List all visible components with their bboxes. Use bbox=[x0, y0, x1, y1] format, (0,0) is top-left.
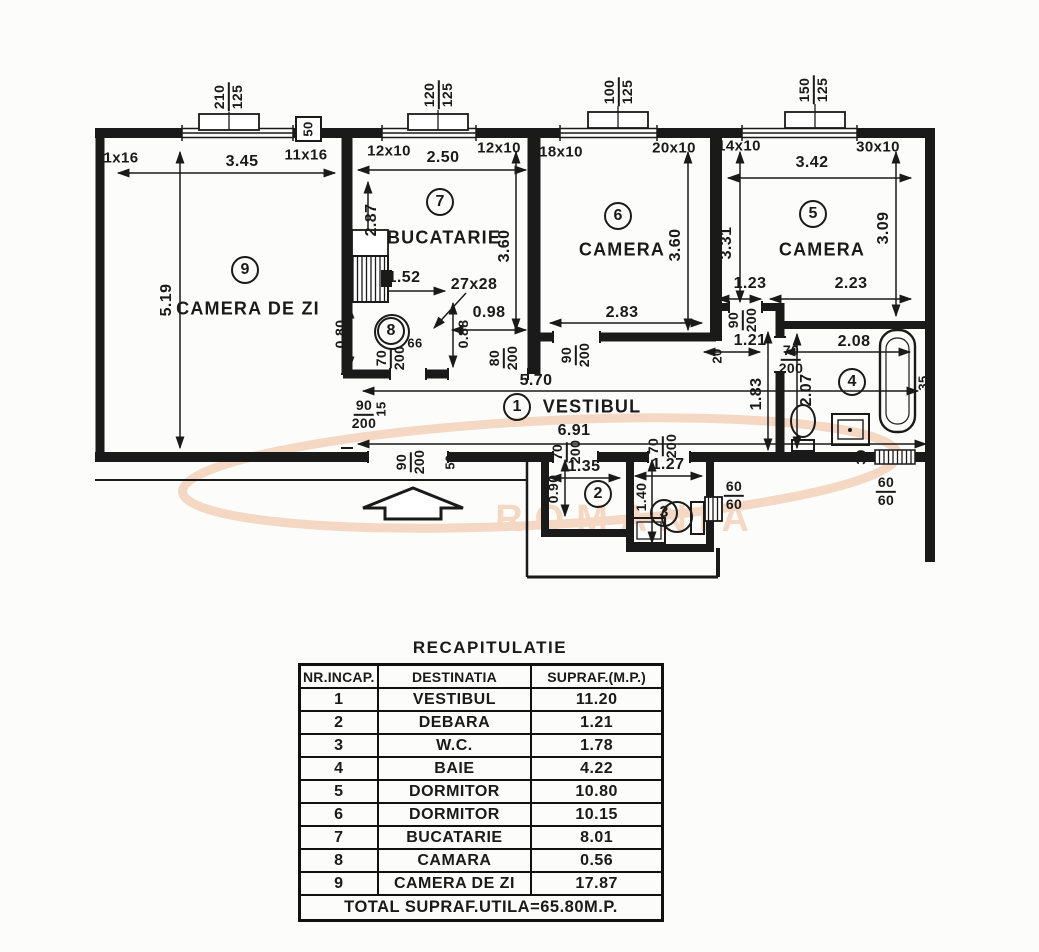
room-area: 11.20 bbox=[531, 688, 662, 711]
room-number-camera-de-zi: 9 bbox=[231, 256, 259, 284]
room-destination: BAIE bbox=[378, 757, 532, 780]
room-nr: 6 bbox=[300, 803, 378, 826]
dim-label: 1.21 bbox=[734, 332, 767, 350]
room-destination: BUCATARIE bbox=[378, 826, 532, 849]
room-area: 10.80 bbox=[531, 780, 662, 803]
dim-label: 1.83 bbox=[748, 378, 766, 411]
recap-table: NR.INCAP. DESTINATIA SUPRAF.(M.P.) 1VEST… bbox=[298, 663, 664, 922]
pier-width-label: 50 bbox=[301, 121, 316, 136]
room-destination: VESTIBUL bbox=[378, 688, 532, 711]
room-nr: 7 bbox=[300, 826, 378, 849]
recap-header-suprafata: SUPRAF.(M.P.) bbox=[531, 665, 662, 689]
dim-label: 66 bbox=[407, 336, 422, 351]
dim-label: 0.80 bbox=[332, 320, 348, 349]
recap-row: 6DORMITOR10.15 bbox=[300, 803, 663, 826]
dim-label: 2.08 bbox=[838, 333, 871, 351]
dim-label: 20 bbox=[710, 348, 725, 363]
room-area: 1.78 bbox=[531, 734, 662, 757]
dim-label: 3.60 bbox=[667, 229, 685, 262]
door-size-label: 90200 bbox=[558, 341, 592, 370]
dim-label: 3.60 bbox=[496, 230, 514, 263]
dim-label: 50 bbox=[443, 454, 458, 469]
room-number-debara: 2 bbox=[584, 480, 612, 508]
window-label: 14x10 bbox=[717, 138, 761, 155]
room-name-bucatarie: BUCATARIE bbox=[387, 228, 501, 249]
sill-size-label: 210125 bbox=[211, 83, 245, 112]
dim-label: 0.90 bbox=[545, 475, 561, 504]
dim-label: 3.45 bbox=[226, 153, 259, 171]
window-label: 30x10 bbox=[856, 139, 900, 156]
door-size-label: 70200 bbox=[373, 344, 407, 373]
dim-label: 1.52 bbox=[388, 269, 421, 287]
room-nr: 8 bbox=[300, 849, 378, 872]
recap-total-row: TOTAL SUPRAF.UTILA=65.80M.P. bbox=[300, 895, 663, 921]
dim-label: 2.07 bbox=[798, 374, 816, 407]
room-area: 8.01 bbox=[531, 826, 662, 849]
room-destination: CAMARA bbox=[378, 849, 532, 872]
window-label: 12x10 bbox=[477, 140, 521, 157]
door-size-label: 80200 bbox=[486, 344, 520, 373]
recap-row: 1VESTIBUL11.20 bbox=[300, 688, 663, 711]
dim-label: 27x28 bbox=[451, 276, 498, 294]
vent-size-label: 6060 bbox=[724, 478, 744, 512]
room-name-vestibul: VESTIBUL bbox=[543, 397, 642, 418]
sill-size-label: 150125 bbox=[796, 76, 830, 105]
room-destination: DORMITOR bbox=[378, 780, 532, 803]
recap-row: 8CAMARA0.56 bbox=[300, 849, 663, 872]
scanned-floor-plan-page: ROMANIA bbox=[0, 0, 1039, 952]
room-number-bucatarie: 7 bbox=[426, 188, 454, 216]
door-size-label: 70200 bbox=[645, 432, 679, 461]
recap-row: 4BAIE4.22 bbox=[300, 757, 663, 780]
sill-size-label: 120125 bbox=[421, 81, 455, 110]
dim-label: 0.98 bbox=[473, 304, 506, 322]
room-destination: W.C. bbox=[378, 734, 532, 757]
window-label: 20x10 bbox=[652, 140, 696, 157]
window-label: 18x10 bbox=[539, 144, 583, 161]
dim-label: 1.40 bbox=[633, 483, 649, 512]
room-area: 1.21 bbox=[531, 711, 662, 734]
door-size-label: 90200 bbox=[725, 306, 759, 335]
room-area: 10.15 bbox=[531, 803, 662, 826]
door-size-label: 90200 bbox=[350, 397, 379, 431]
room-nr: 5 bbox=[300, 780, 378, 803]
recap-table-title: RECAPITULATIE bbox=[413, 638, 567, 658]
window-label: 11x16 bbox=[285, 147, 328, 164]
door-size-label: 90200 bbox=[393, 448, 427, 477]
room-area: 4.22 bbox=[531, 757, 662, 780]
window-label: 11x16 bbox=[96, 150, 139, 167]
room-name-camera-5: CAMERA bbox=[779, 240, 865, 261]
dim-label: 3.09 bbox=[875, 212, 893, 245]
door-size-label: 70200 bbox=[549, 438, 583, 467]
room-number-baie: 4 bbox=[838, 368, 866, 396]
recap-row: 2DEBARA1.21 bbox=[300, 711, 663, 734]
room-destination: DORMITOR bbox=[378, 803, 532, 826]
dim-label: 0.88 bbox=[455, 320, 471, 349]
recap-header-destinatia: DESTINATIA bbox=[378, 665, 532, 689]
room-number-camera-6: 6 bbox=[604, 202, 632, 230]
vent-size-label: 6060 bbox=[876, 474, 896, 508]
dim-label: 30 bbox=[854, 449, 869, 464]
room-number-wc: 3 bbox=[650, 499, 678, 527]
dim-label: 2.50 bbox=[427, 149, 460, 167]
room-nr: 4 bbox=[300, 757, 378, 780]
room-area: 0.56 bbox=[531, 849, 662, 872]
room-nr: 3 bbox=[300, 734, 378, 757]
recap-header-row: NR.INCAP. DESTINATIA SUPRAF.(M.P.) bbox=[300, 665, 663, 689]
window-label: 12x10 bbox=[367, 143, 411, 160]
room-number-camera-5: 5 bbox=[799, 200, 827, 228]
room-nr: 1 bbox=[300, 688, 378, 711]
recap-total: TOTAL SUPRAF.UTILA=65.80M.P. bbox=[300, 895, 663, 921]
dim-label: 35 bbox=[916, 375, 931, 390]
room-number-camara: 8 bbox=[377, 317, 405, 345]
recap-header-nr: NR.INCAP. bbox=[300, 665, 378, 689]
dim-label: 2.83 bbox=[606, 304, 639, 322]
room-nr: 9 bbox=[300, 872, 378, 895]
room-number-vestibul: 1 bbox=[503, 393, 531, 421]
dim-label: 2.87 bbox=[363, 204, 381, 237]
room-name-camera-de-zi: CAMERA DE ZI bbox=[176, 299, 320, 320]
recap-row: 3W.C.1.78 bbox=[300, 734, 663, 757]
dim-label: 3.31 bbox=[718, 227, 736, 260]
dim-label: 5.19 bbox=[158, 284, 176, 317]
dim-label: 5.70 bbox=[520, 372, 553, 390]
room-nr: 2 bbox=[300, 711, 378, 734]
dim-label: 3.42 bbox=[796, 154, 829, 172]
dim-label: 2.23 bbox=[835, 275, 868, 293]
door-size-label: 70200 bbox=[777, 342, 806, 376]
recap-row: 7BUCATARIE8.01 bbox=[300, 826, 663, 849]
recap-row: 9CAMERA DE ZI17.87 bbox=[300, 872, 663, 895]
room-destination: DEBARA bbox=[378, 711, 532, 734]
dim-label: 1.23 bbox=[734, 275, 767, 293]
room-name-camera-6: CAMERA bbox=[579, 240, 665, 261]
room-area: 17.87 bbox=[531, 872, 662, 895]
recap-row: 5DORMITOR10.80 bbox=[300, 780, 663, 803]
room-destination: CAMERA DE ZI bbox=[378, 872, 532, 895]
sill-size-label: 100125 bbox=[601, 78, 635, 107]
